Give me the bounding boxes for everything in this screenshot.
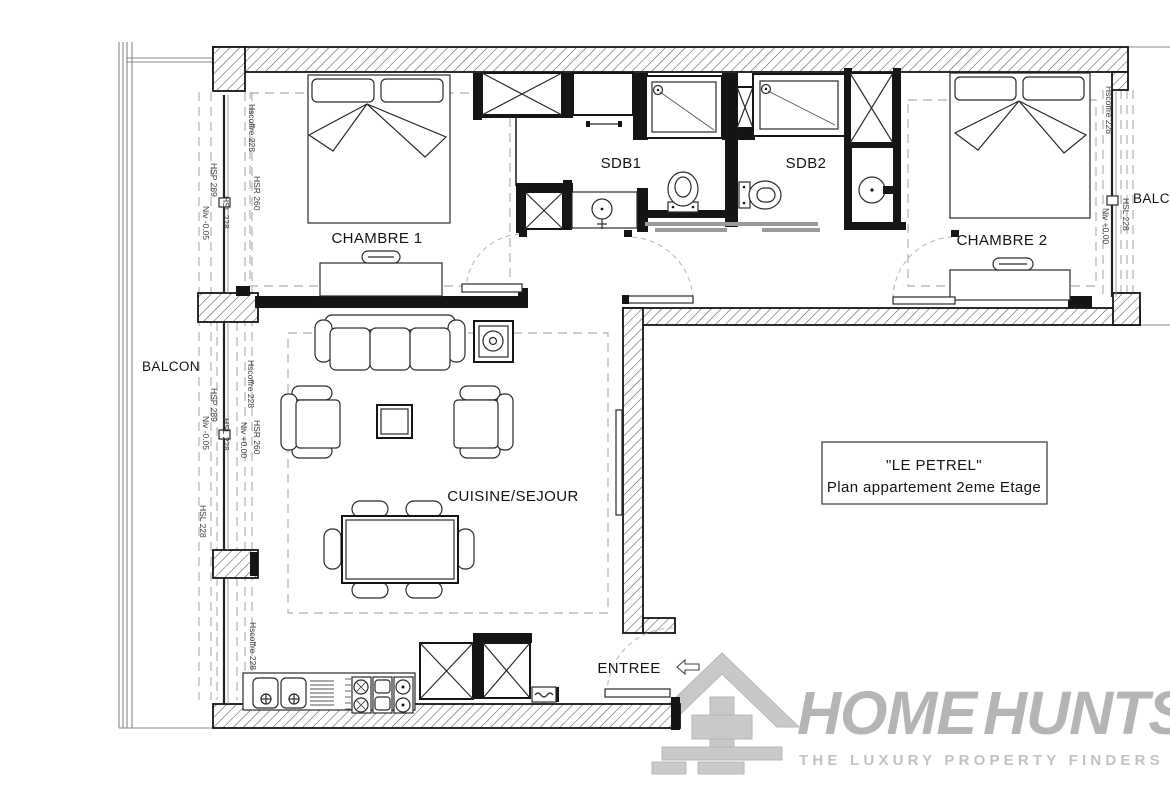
toilet-sdb1 bbox=[668, 172, 698, 212]
living-furniture bbox=[281, 315, 622, 598]
label-sdb1: SDB1 bbox=[601, 155, 642, 172]
small-basin bbox=[532, 687, 556, 702]
annotation: Hscoffre 228 bbox=[1104, 86, 1114, 134]
wall-pier-right bbox=[1113, 293, 1140, 325]
homehunts-logo: HOMEHUNTS THE LUXURY PROPERTY FINDERS bbox=[645, 653, 1170, 774]
bed-chambre2 bbox=[950, 73, 1090, 218]
wall-corridor-bottom bbox=[623, 308, 1140, 325]
closet-sdb1 bbox=[525, 192, 563, 229]
vanity-sdb1 bbox=[572, 192, 637, 229]
cabinet-hall-top bbox=[573, 73, 633, 127]
annotation: HSP 289 bbox=[209, 163, 219, 197]
annotation: HSR 260 bbox=[252, 420, 262, 455]
closet-sdb2-corner bbox=[850, 73, 893, 143]
label-chambre2: CHAMBRE 2 bbox=[956, 232, 1047, 249]
logo-text: HOMEHUNTS bbox=[797, 679, 1170, 747]
dresser-chambre2 bbox=[950, 258, 1070, 300]
logo-text-hunts: HUNTS bbox=[983, 679, 1170, 747]
coffee-table bbox=[377, 405, 412, 438]
bedroom2-furniture bbox=[950, 73, 1090, 300]
label-balcon-left: BALCON bbox=[142, 359, 200, 374]
title-box: "LE PETREL" Plan appartement 2eme Etage bbox=[822, 442, 1047, 504]
wall-ledge bbox=[616, 410, 622, 515]
annotation: Niv -0.05 bbox=[201, 416, 211, 450]
toilet-sdb2 bbox=[739, 181, 781, 209]
annotation: Niv +0.00 bbox=[1101, 208, 1111, 244]
closet-kitchen-1 bbox=[420, 643, 473, 699]
annotation: Hscoffre 228 bbox=[246, 360, 256, 408]
title-line1: "LE PETREL" bbox=[886, 457, 982, 474]
wall-sejour-right bbox=[623, 308, 643, 633]
bed-chambre1 bbox=[308, 75, 450, 223]
kitchen-stove bbox=[345, 677, 413, 713]
label-balcon-right: BALCON bbox=[1133, 191, 1170, 206]
annotation: HSL 228 bbox=[221, 196, 231, 229]
floor-plan: HOMEHUNTS THE LUXURY PROPERTY FINDERS bbox=[0, 0, 1170, 785]
logo-text-home: HOME bbox=[797, 679, 979, 747]
bedroom1-furniture bbox=[308, 75, 450, 296]
annotation: HSL 228 bbox=[1121, 198, 1131, 231]
annotation: Hscoffre 228 bbox=[248, 622, 258, 670]
annotation: HSL 228 bbox=[198, 505, 208, 538]
armchair-right bbox=[454, 386, 513, 458]
dresser-chambre1 bbox=[320, 251, 442, 296]
closet-kitchen-2 bbox=[483, 643, 530, 698]
door-chambre2 bbox=[893, 230, 959, 304]
annotation: HSL 228 bbox=[221, 418, 231, 451]
closet-hall-top bbox=[482, 73, 562, 115]
annotation: HSR 260 bbox=[252, 176, 262, 211]
entry-arrow-icon bbox=[677, 660, 699, 674]
wall-pier-left-mid bbox=[198, 293, 258, 322]
shower-sdb1 bbox=[646, 76, 722, 138]
wall-top-left-corner bbox=[213, 47, 245, 91]
dining-table bbox=[324, 501, 474, 598]
sofa bbox=[315, 315, 465, 370]
basin-sdb2 bbox=[859, 177, 896, 203]
wall-entry-foot bbox=[643, 618, 675, 633]
annotation: Niv +0.00 bbox=[239, 422, 249, 458]
door-corridor bbox=[622, 230, 693, 304]
floor-plan-canvas: HOMEHUNTS THE LUXURY PROPERTY FINDERS bbox=[0, 0, 1170, 785]
title-line2: Plan appartement 2eme Etage bbox=[827, 479, 1041, 496]
closet-sdb2-narrow bbox=[737, 87, 753, 128]
annotation: Hscoffre 228 bbox=[247, 104, 257, 152]
balcony-right-railing bbox=[1128, 47, 1170, 325]
door-chambre1 bbox=[462, 230, 527, 292]
tv-unit bbox=[474, 321, 513, 362]
wall-top bbox=[213, 47, 1128, 72]
logo-tagline: THE LUXURY PROPERTY FINDERS bbox=[799, 752, 1164, 769]
shower-sdb2 bbox=[753, 74, 845, 136]
annotation: Niv -0.05 bbox=[201, 206, 211, 240]
label-entree: ENTREE bbox=[597, 660, 660, 677]
label-cuisine-sejour: CUISINE/SEJOUR bbox=[447, 488, 578, 505]
label-sdb2: SDB2 bbox=[786, 155, 827, 172]
armchair-left bbox=[281, 386, 340, 458]
label-chambre1: CHAMBRE 1 bbox=[331, 230, 422, 247]
